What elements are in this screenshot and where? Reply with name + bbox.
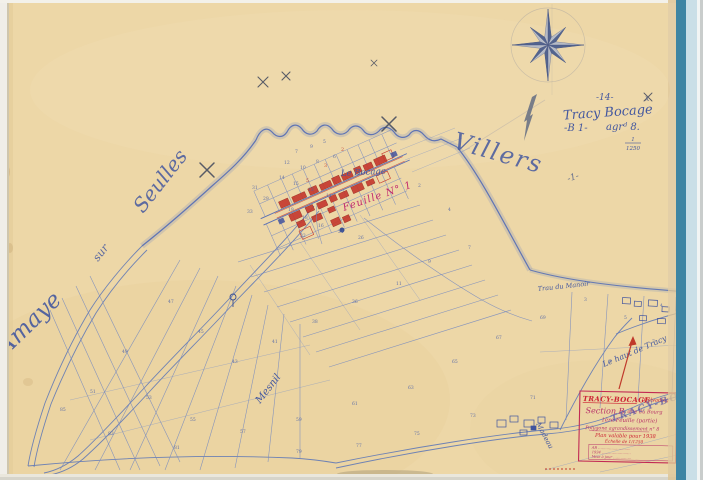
parcel-number: 7 [295, 149, 298, 155]
parcel-number: 19 [288, 207, 294, 213]
parcel-number: 14 [279, 175, 285, 181]
page-number: -14- [596, 93, 614, 103]
parcel-number: 2 [341, 147, 344, 153]
parcel-number: 7 [652, 339, 655, 345]
parcel-number: 57 [240, 429, 246, 435]
parcel-number: 53 [146, 395, 152, 401]
parcel-number: 63 [408, 385, 414, 391]
parcel-number: 71 [530, 395, 536, 401]
parcel-number: 43 [232, 359, 238, 365]
parcel-number: 55 [190, 417, 196, 423]
parcel-number: 8 [316, 159, 319, 165]
parcel-number: 36 [352, 299, 358, 305]
cartouche-echelle: Échelle de 1/1250 [604, 439, 644, 445]
parcel-number: 31 [252, 185, 258, 191]
parcel-number: 38 [312, 319, 318, 325]
parcel-number: 18 [302, 215, 308, 221]
parcel-number: 5 [624, 315, 627, 321]
parcel-number: 12 [284, 160, 290, 166]
parcel-number: 73 [470, 413, 476, 419]
cadastral-map-scan: -14- Tracy Bocage -B 1- agrᵈ 8. 1 1250 -… [0, 0, 703, 480]
parcel-number: 45 [198, 329, 204, 335]
parcel-number: 51 [90, 389, 96, 395]
parcel-number: 26 [358, 235, 364, 241]
parcel-number: 5 [306, 178, 309, 184]
parcel-number: 29 [263, 196, 269, 202]
parcel-number: 61 [352, 401, 358, 407]
parcel-number: 11 [396, 281, 402, 287]
parcel-number: 13 [308, 187, 314, 193]
section-note: -B 1- [564, 123, 588, 134]
parcel-number: 3 [324, 163, 327, 169]
parcel-number: 2 [418, 183, 421, 189]
parcel-number: 41 [272, 339, 278, 345]
parcel-number: 85 [60, 407, 66, 413]
parcel-number: 9 [608, 359, 611, 365]
parcel-number: 59 [296, 417, 302, 423]
parcel-number: 16 [318, 223, 324, 229]
parcel-number: 79 [296, 449, 302, 455]
scale-denominator: 1250 [626, 146, 640, 152]
corner-x-mark: x [645, 94, 650, 103]
parcel-number: 11 [326, 193, 332, 199]
parcel-number: 33 [247, 209, 253, 215]
page-edge-shadow [668, 0, 676, 480]
parcel-number: 7 [292, 196, 295, 202]
binding-light-strip [686, 0, 697, 480]
parcel-number: 22 [300, 233, 306, 239]
parcel-number: 24 [338, 229, 344, 235]
parcel-number: 15 [293, 181, 299, 187]
parcel-number: 81 [174, 445, 180, 451]
map-canvas: -14- Tracy Bocage -B 1- agrᵈ 8. 1 1250 -… [0, 0, 703, 480]
parcel-number: 83 [108, 431, 114, 437]
parcel-number: 7 [468, 245, 471, 251]
paper-stain [23, 378, 33, 386]
parcel-number: 10 [300, 165, 306, 171]
parcel-number: 9 [310, 144, 313, 150]
parcel-number: 65 [452, 359, 458, 365]
parcel-number: 67 [496, 335, 502, 341]
binding-teal-strip [676, 0, 686, 480]
parcel-number: 77 [356, 443, 362, 449]
agrandissement-note: agrᵈ 8. [606, 122, 640, 133]
parcel-number: 9 [428, 259, 431, 265]
parcel-number: 3 [584, 297, 587, 303]
parcel-number: 4 [448, 207, 451, 213]
parcel-number: 75 [414, 431, 420, 437]
parcel-number: 69 [540, 315, 546, 321]
parcel-number: 49 [122, 349, 128, 355]
parcel-number: 47 [168, 299, 174, 305]
scale-numerator: 1 [631, 137, 635, 143]
parcel-number: 4 [660, 303, 663, 309]
parcel-number: 5 [323, 139, 326, 145]
parcel-number: 6 [333, 154, 336, 160]
